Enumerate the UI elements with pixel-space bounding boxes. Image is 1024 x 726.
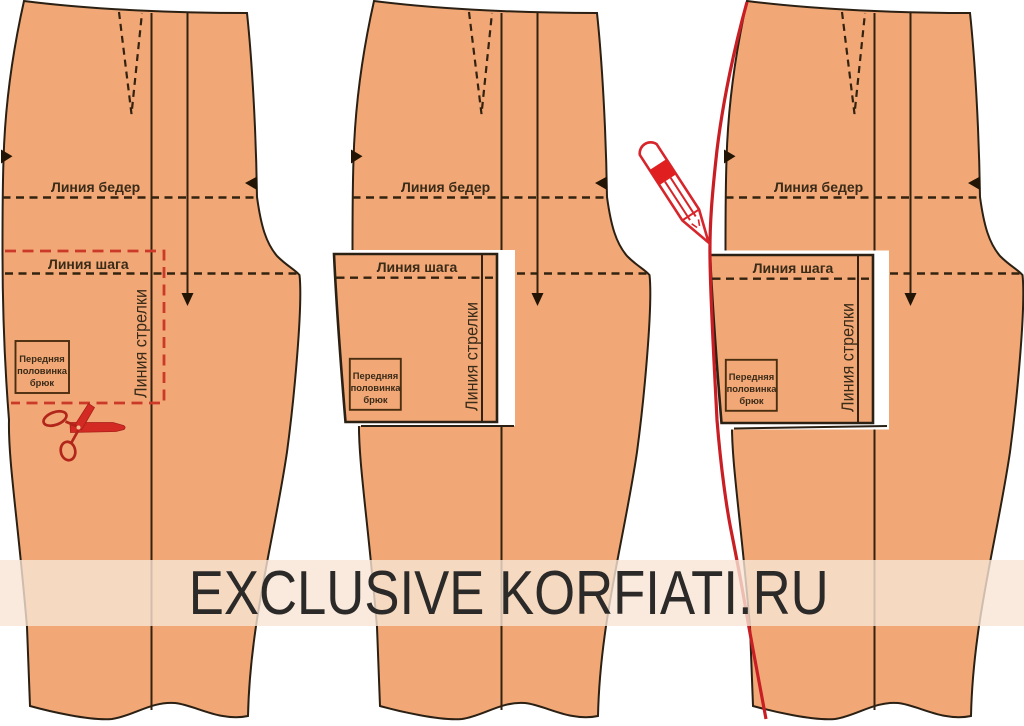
svg-text:EXCLUSIVE KORFIATI.RU: EXCLUSIVE KORFIATI.RU [189,559,829,628]
